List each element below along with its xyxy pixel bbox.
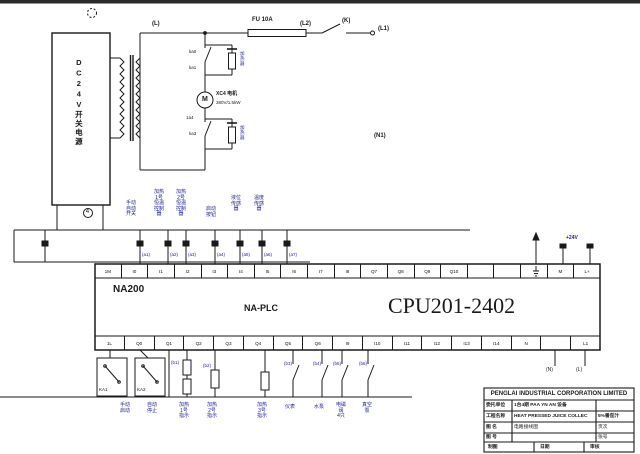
wire-tag: (a7) bbox=[289, 252, 297, 257]
title-row-label: 图 号 bbox=[486, 435, 497, 440]
wire-tag: (a1) bbox=[142, 252, 150, 257]
plc-model: CPU201-2402 bbox=[388, 294, 515, 319]
title-row-label: 委托单位 bbox=[486, 403, 505, 408]
motor-spec: 380V/1.5kW bbox=[216, 100, 241, 105]
title-block-company: PENGLAI INDUSTRIAL CORPORATION LIMITED bbox=[486, 391, 632, 398]
plc-bottom-terminal-row: 1LQ0Q1Q2Q3Q4Q5Q6I9I10I11I12I13I14NL1 bbox=[95, 336, 600, 350]
ac-tag: (N) bbox=[546, 368, 553, 374]
terminal-cell: I4 bbox=[227, 264, 254, 278]
output-label: 加热 3号 指示 bbox=[257, 403, 267, 420]
wire-tag: (a2) bbox=[170, 252, 178, 257]
power-supply-label: DC24V开关电源 bbox=[74, 58, 82, 147]
n1-tag: (N1) bbox=[374, 133, 386, 140]
terminal-cell bbox=[520, 264, 547, 278]
plc-power-wires bbox=[533, 233, 593, 264]
title-row-extra: 5%番茄汁 bbox=[598, 414, 619, 419]
schematic-page: DC24V开关电源 4 (L) FU 10A (L2) (K) (L1) (N1… bbox=[0, 0, 640, 454]
title-footer-cell: 制图 bbox=[488, 445, 498, 450]
terminal-cell bbox=[540, 336, 570, 350]
terminal-cell: Q8 bbox=[387, 264, 414, 278]
title-row-label: 图 名 bbox=[486, 425, 497, 430]
lamp-symbol bbox=[211, 370, 219, 388]
input-label: 启动 按钮 bbox=[206, 207, 216, 218]
contact-symbol bbox=[322, 365, 328, 380]
output-label: 水泵 bbox=[314, 405, 324, 411]
input-label: 加热 2号 恒温 控制 器 bbox=[176, 190, 186, 218]
title-row-label: 工程名称 bbox=[486, 414, 505, 419]
terminal-cell: I6 bbox=[280, 264, 307, 278]
lamp-symbol bbox=[261, 372, 269, 390]
output-label: 电磁 阀 4只 bbox=[336, 403, 346, 420]
lamp-symbol bbox=[183, 379, 191, 394]
terminal-cell: I0 bbox=[121, 264, 148, 278]
input-label: 手动 自动 开关 bbox=[126, 201, 136, 218]
wire-tag: (b6) bbox=[359, 361, 367, 366]
contact-symbol bbox=[368, 365, 374, 380]
terminal-cell: Q0 bbox=[124, 336, 154, 350]
motor-name: XC4 电机 bbox=[216, 92, 237, 98]
l1-tag: (L1) bbox=[378, 26, 389, 33]
terminal-cell: M bbox=[547, 264, 574, 278]
contact-tag: ka0 bbox=[189, 49, 196, 54]
heater-label: 加 热 器 bbox=[240, 51, 245, 66]
plc-series: NA-PLC bbox=[244, 303, 278, 313]
terminal-cell: I7 bbox=[307, 264, 334, 278]
contact-symbol bbox=[205, 121, 211, 136]
fuse-label: FU 10A bbox=[252, 17, 273, 24]
terminal-cell: Q1 bbox=[154, 336, 184, 350]
terminal-cell: Q7 bbox=[360, 264, 387, 278]
wire-tag: (b5) bbox=[333, 361, 341, 366]
terminal-cell: Q6 bbox=[302, 336, 332, 350]
ac-tag: (L) bbox=[576, 368, 582, 374]
plus24v-tag: +24V bbox=[566, 236, 578, 242]
title-row-value: 1台4期 PAA YN AN 设备 bbox=[514, 403, 567, 408]
output-label: 自动 停止 bbox=[147, 403, 157, 414]
terminal-cell: I12 bbox=[421, 336, 451, 350]
title-footer-cell: 日期 bbox=[540, 445, 550, 450]
wire-tag: (b2) bbox=[203, 363, 211, 368]
input-label: 温度 传感 器 bbox=[254, 196, 264, 213]
input-label: 加热 1号 恒温 控制 器 bbox=[154, 190, 164, 218]
heater-label: 加 热 器 bbox=[240, 125, 245, 140]
top-border-bar bbox=[0, 0, 640, 4]
terminal-cell: I3 bbox=[201, 264, 228, 278]
output-label: 真空 泵 bbox=[362, 403, 372, 414]
wire-tag: (a5) bbox=[242, 252, 250, 257]
title-row-extra: 张号 bbox=[598, 435, 608, 440]
wire-tag: (a4) bbox=[217, 252, 225, 257]
wire-tag: (b4) bbox=[313, 361, 321, 366]
contact-symbol bbox=[342, 365, 348, 380]
title-footer-cell: 审核 bbox=[590, 445, 600, 450]
motor-symbol: M bbox=[202, 96, 208, 104]
node-number: 4 bbox=[86, 209, 89, 216]
terminal-cell: Q10 bbox=[440, 264, 467, 278]
plc-brand: NA200 bbox=[113, 284, 144, 295]
title-block-grid bbox=[484, 388, 634, 452]
contact-symbol bbox=[293, 365, 299, 380]
terminal-cell: L1 bbox=[570, 336, 600, 350]
output-label: 手动 启动 bbox=[120, 403, 130, 414]
l2-tag: (L2) bbox=[300, 21, 311, 28]
title-row-extra: 页次 bbox=[598, 425, 608, 430]
schematic-wires bbox=[0, 0, 640, 454]
wire-tag: (a6) bbox=[264, 252, 272, 257]
terminal-cell: I10 bbox=[362, 336, 392, 350]
title-row-value: HEAT PRESSED JUICE COLLEC bbox=[514, 414, 587, 419]
terminal-cell: Q5 bbox=[273, 336, 303, 350]
connector-symbol bbox=[88, 9, 97, 18]
title-row-value: 电路接线图 bbox=[514, 425, 538, 430]
terminal-cell: Q3 bbox=[213, 336, 243, 350]
relay-tag: KA2 bbox=[137, 387, 146, 392]
terminal-cell: 1L bbox=[95, 336, 124, 350]
contact-tag: ka3 bbox=[189, 131, 196, 136]
l-tag: (L) bbox=[152, 21, 160, 28]
terminal-cell: Q4 bbox=[243, 336, 273, 350]
output-label: 仪表 bbox=[285, 405, 295, 411]
wire-tag: (a3) bbox=[188, 252, 196, 257]
switch-symbol bbox=[322, 24, 340, 33]
terminal-cell: I13 bbox=[451, 336, 481, 350]
terminal-cell: Q2 bbox=[183, 336, 213, 350]
terminal-cell: Q9 bbox=[414, 264, 441, 278]
plc-top-terminal-row: 1MI0I1I2I3I4I5I6I7I8Q7Q8Q9Q10ML+ bbox=[95, 264, 600, 278]
terminal-cell: N bbox=[511, 336, 541, 350]
terminal-cell: 1M bbox=[95, 264, 121, 278]
terminal-cell bbox=[467, 264, 494, 278]
fuse-symbol bbox=[248, 30, 306, 37]
terminal-cell: I11 bbox=[392, 336, 422, 350]
contact-tag: 1a4 bbox=[186, 115, 194, 120]
k-tag: (K) bbox=[342, 18, 350, 25]
feeder-line bbox=[140, 24, 375, 170]
terminal-cell: I1 bbox=[147, 264, 174, 278]
contact-symbol bbox=[205, 47, 211, 62]
heater-resistor bbox=[229, 53, 236, 69]
input-label: 液位 传感 器 bbox=[231, 196, 241, 213]
transformer-symbol bbox=[110, 55, 140, 141]
output-label: 加热 1号 指示 bbox=[179, 403, 189, 420]
terminal-cell: I5 bbox=[254, 264, 281, 278]
output-label: 加热 2号 指示 bbox=[207, 403, 217, 420]
terminal-cell bbox=[493, 264, 520, 278]
terminal-circle bbox=[371, 31, 375, 35]
terminal-cell: I8 bbox=[334, 264, 361, 278]
lamp-symbol bbox=[183, 360, 191, 375]
arrow-up bbox=[533, 233, 539, 240]
contact-tag: ka1 bbox=[189, 65, 196, 70]
wire-tag: (b1) bbox=[171, 360, 179, 365]
relay-tag: KA1 bbox=[99, 387, 108, 392]
wire-tag: (b3) bbox=[284, 361, 292, 366]
heater-resistor bbox=[229, 127, 236, 143]
terminal-cell: I9 bbox=[332, 336, 362, 350]
terminal-cell: I2 bbox=[174, 264, 201, 278]
terminal-cell: I14 bbox=[481, 336, 511, 350]
terminal-cell: L+ bbox=[573, 264, 600, 278]
